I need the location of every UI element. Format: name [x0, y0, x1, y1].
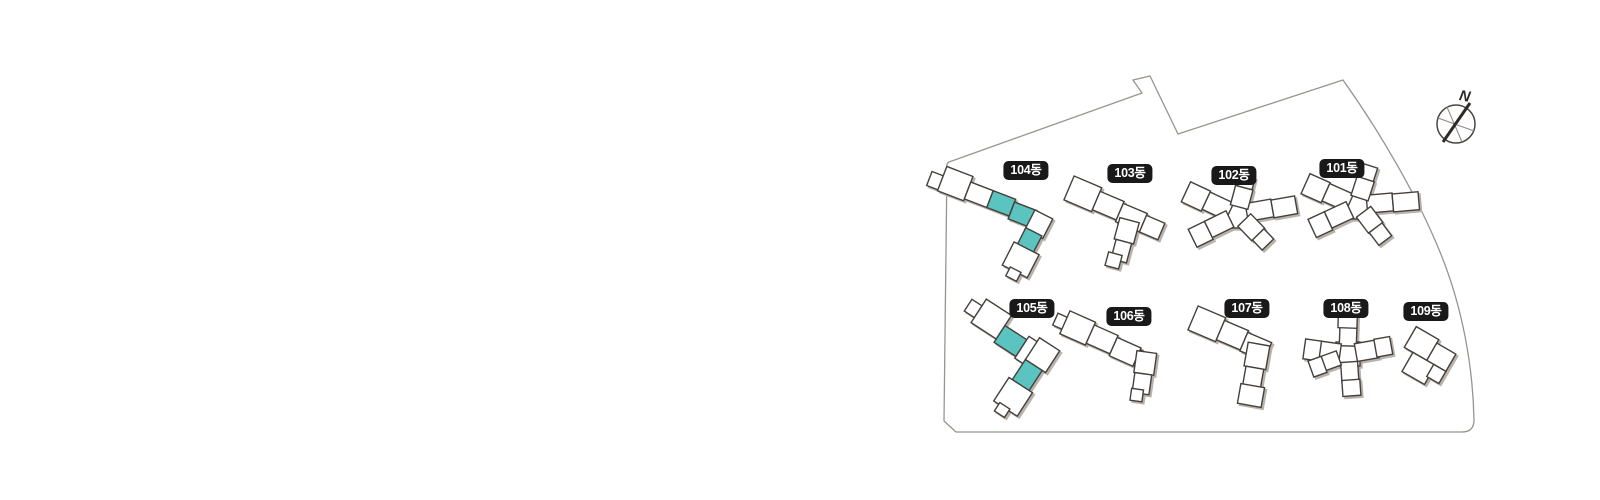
- unit-block: [1237, 384, 1264, 408]
- building-label-108[interactable]: 108동: [1323, 299, 1368, 318]
- site-plan-page: N 104동 103동 102동 101동 105동 106동 107동 108…: [0, 0, 1600, 500]
- unit-block: [1130, 388, 1144, 402]
- unit-block: [1105, 252, 1122, 269]
- building-label-102[interactable]: 102동: [1211, 166, 1256, 185]
- building-label-103[interactable]: 103동: [1107, 164, 1152, 183]
- site-plan-map: N: [0, 0, 1600, 500]
- unit-block: [1374, 337, 1393, 358]
- unit-block: [1342, 379, 1361, 396]
- unit-block: [1271, 196, 1298, 218]
- compass-north-label: N: [1458, 87, 1473, 106]
- building-label-107[interactable]: 107동: [1224, 299, 1269, 318]
- building-label-101[interactable]: 101동: [1319, 159, 1364, 178]
- building-label-106[interactable]: 106동: [1106, 307, 1151, 326]
- building-label-105[interactable]: 105동: [1009, 299, 1054, 318]
- building-label-104[interactable]: 104동: [1003, 161, 1048, 180]
- building-label-109[interactable]: 109동: [1403, 302, 1448, 321]
- unit-block: [1392, 192, 1419, 212]
- unit-block: [1134, 351, 1157, 376]
- compass-icon: N: [1437, 87, 1475, 143]
- unit-block: [1244, 342, 1270, 369]
